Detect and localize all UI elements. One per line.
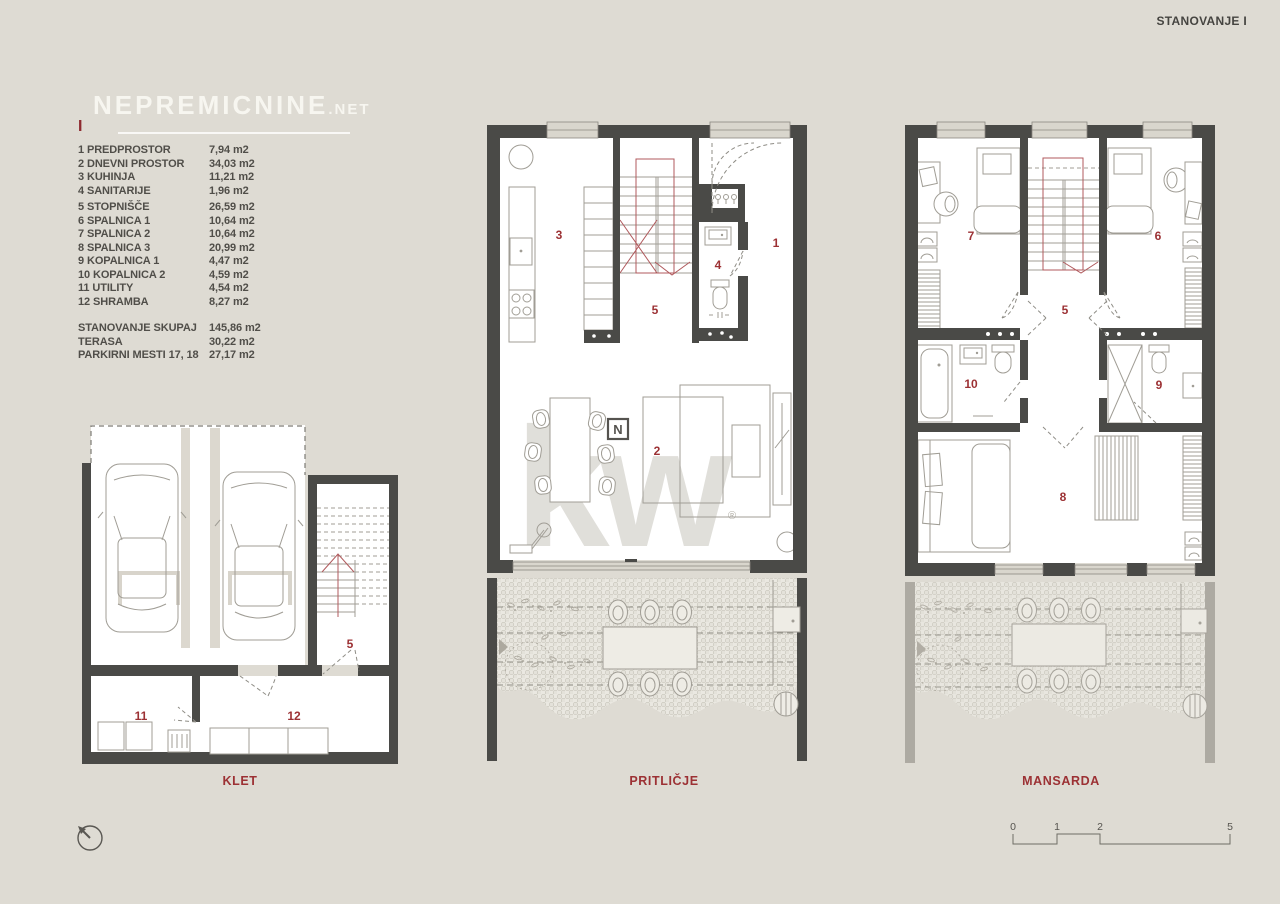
terrace bbox=[487, 578, 807, 761]
legend-row: 4 SANITARIJE1,96 m2 bbox=[78, 185, 368, 199]
dining-set bbox=[524, 398, 616, 502]
brand-watermark: NEPREMICNINE.NET bbox=[93, 90, 371, 121]
legend-divider bbox=[118, 132, 350, 134]
driveway-strip bbox=[210, 428, 220, 648]
legend-row: 6 SPALNICA 110,64 m2 bbox=[78, 215, 368, 229]
legend-row: 5 STOPNIŠČE26,59 m2 bbox=[78, 201, 368, 215]
room-number-2: 2 bbox=[654, 444, 661, 458]
svg-text:N: N bbox=[613, 422, 622, 437]
room-number-12: 12 bbox=[287, 709, 301, 723]
room-number-5: 5 bbox=[652, 303, 659, 317]
scale-tick-0: 0 bbox=[1010, 821, 1016, 833]
room-number-8: 8 bbox=[1060, 490, 1067, 504]
legend-row: 1 PREDPROSTOR7,94 m2 bbox=[78, 144, 368, 158]
room-number-9: 9 bbox=[1156, 378, 1163, 392]
legend-row: 8 SPALNICA 320,99 m2 bbox=[78, 242, 368, 256]
north-arrow-icon bbox=[70, 818, 110, 858]
legend-row: 12 SHRAMBA8,27 m2 bbox=[78, 296, 368, 310]
room-number-4: 4 bbox=[715, 258, 722, 272]
room-number-10: 10 bbox=[964, 377, 978, 391]
legend-total-row: TERASA30,22 m2 bbox=[78, 336, 368, 350]
page-title: STANOVANJE I bbox=[1156, 14, 1247, 28]
terrace-table bbox=[1012, 624, 1106, 666]
terrace bbox=[905, 582, 1215, 763]
legend-row: 10 KOPALNICA 24,59 m2 bbox=[78, 269, 368, 283]
scale-tick-5: 5 bbox=[1227, 821, 1233, 833]
legend-row: 3 KUHINJA11,21 m2 bbox=[78, 171, 368, 185]
n-logo-badge: N bbox=[608, 419, 628, 439]
legend-total-row: PARKIRNI MESTI 17, 1827,17 m2 bbox=[78, 349, 368, 363]
floor-label-mansarda: MANSARDA bbox=[951, 774, 1171, 788]
room-number-5: 5 bbox=[1062, 303, 1069, 317]
brand-tld: .NET bbox=[328, 101, 370, 118]
floor-label-pritlicje: PRITLIČJE bbox=[554, 774, 774, 788]
floor-label-klet: KLET bbox=[130, 774, 350, 788]
scale-bar: 0 1 2 5 bbox=[1000, 818, 1240, 852]
brand-name: NEPREMICNINE bbox=[93, 90, 328, 120]
terrace-table bbox=[603, 627, 697, 669]
room-number-7: 7 bbox=[968, 229, 975, 243]
room-number-1: 1 bbox=[773, 236, 780, 250]
legend-row: 11 UTILITY4,54 m2 bbox=[78, 282, 368, 296]
room-number-5: 5 bbox=[347, 637, 354, 651]
legend-items: 1 PREDPROSTOR7,94 m2 2 DNEVNI PROSTOR34,… bbox=[78, 144, 368, 309]
room-number-6: 6 bbox=[1155, 229, 1162, 243]
legend-total-row: STANOVANJE SKUPAJ145,86 m2 bbox=[78, 322, 368, 336]
room-legend: 1 PREDPROSTOR7,94 m2 2 DNEVNI PROSTOR34,… bbox=[78, 144, 368, 363]
floor-plan-pritlicje: kw ® bbox=[485, 118, 835, 768]
registered-mark: ® bbox=[728, 510, 736, 522]
page: STANOVANJE I NEPREMICNINE.NET I 1 PREDPR… bbox=[0, 0, 1280, 904]
room-number-11: 11 bbox=[135, 709, 148, 723]
legend-marker: I bbox=[78, 118, 82, 136]
scale-tick-1: 1 bbox=[1054, 821, 1060, 833]
coat-hooks bbox=[712, 189, 738, 208]
storage-shelving bbox=[210, 728, 328, 754]
floor-plan-klet: 5 11 12 bbox=[78, 420, 403, 765]
floor-plan-mansarda: 7 6 5 10 9 8 bbox=[900, 118, 1220, 768]
legend-row: 9 KOPALNICA 14,47 m2 bbox=[78, 255, 368, 269]
legend-row: 7 SPALNICA 210,64 m2 bbox=[78, 228, 368, 242]
room-number-3: 3 bbox=[556, 228, 563, 242]
driveway-strip bbox=[181, 428, 190, 648]
legend-row: 2 DNEVNI PROSTOR34,03 m2 bbox=[78, 158, 368, 172]
scale-tick-2: 2 bbox=[1097, 821, 1103, 833]
legend-totals: STANOVANJE SKUPAJ145,86 m2 TERASA30,22 m… bbox=[78, 322, 368, 363]
